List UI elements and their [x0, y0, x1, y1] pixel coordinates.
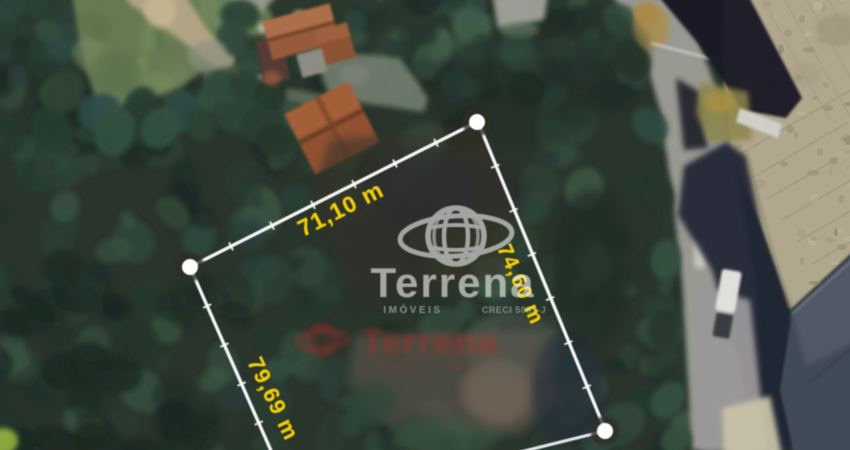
svg-text:Terrena: Terrena	[371, 259, 536, 306]
svg-text:CRECI 5087-J: CRECI 5087-J	[482, 305, 547, 315]
svg-text:IMÓVEIS: IMÓVEIS	[383, 303, 442, 316]
svg-text:Terrena: Terrena	[362, 321, 498, 362]
svg-text:IMOVEIS CRECI: IMOVEIS CRECI	[374, 363, 482, 372]
